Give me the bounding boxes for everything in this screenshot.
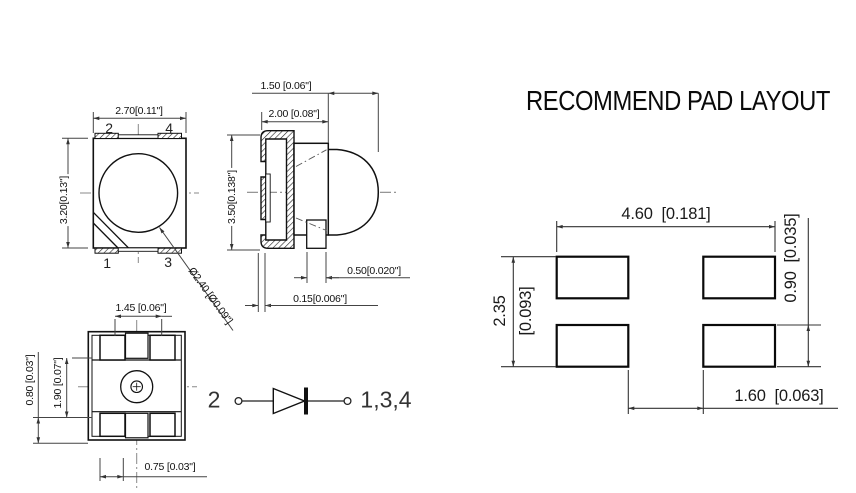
solder-pad [703, 257, 775, 299]
body-mid-dim: 1.90 [0.07"] [53, 358, 64, 409]
pad-1 [95, 248, 118, 253]
technical-drawing-canvas: RECOMMEND PAD LAYOUT 2.70[0.11"] 3.20[0.… [0, 0, 856, 493]
bottom-view-body [88, 332, 185, 440]
diode-symbol-icon [235, 388, 351, 415]
pad-width-dim: 4.60 [0.181] [621, 205, 710, 222]
pad-height-mm-dim: 2.35 [492, 295, 509, 326]
solder-pad [557, 257, 629, 299]
pin-label-1: 1 [103, 256, 111, 270]
diode-cathode-bar [304, 388, 308, 415]
anode-pin-label: 2 [208, 389, 221, 412]
pin-label-4: 4 [165, 121, 173, 135]
lead-step [307, 220, 326, 248]
pad-row-dim: 0.80 [0.03"] [25, 355, 36, 406]
led-package-outline [93, 138, 186, 248]
bottom-pad [100, 335, 125, 360]
side-height-dim: 3.50[0.138"] [227, 168, 238, 226]
pin-label-3: 3 [164, 255, 172, 269]
cathode-pins-label: 1,3,4 [360, 389, 411, 412]
pad-gap-dim: 1.60 [0.063] [734, 388, 823, 405]
tab-offset-dim: 0.75 [0.03"] [145, 462, 196, 473]
side-view [227, 93, 410, 312]
dome-lens-profile [328, 150, 378, 236]
page-title: RECOMMEND PAD LAYOUT [526, 85, 830, 117]
diode-anode-triangle [273, 389, 304, 414]
side-body-depth-dim: 2.00 [0.08"] [269, 109, 320, 120]
solder-pad [557, 325, 629, 367]
front-width-dim: 2.70[0.11"] [115, 106, 162, 117]
side-view-body [261, 131, 378, 249]
front-view-body [93, 133, 186, 253]
bottom-pad [100, 413, 125, 436]
pad-3 [158, 248, 182, 253]
side-lens-depth-dim: 1.50 [0.06"] [261, 81, 312, 92]
center-tab-top [126, 333, 149, 358]
front-height-dim: 3.20[0.13"] [59, 174, 70, 226]
tab-width-dim: 1.45 [0.06"] [116, 302, 167, 313]
lead-width-dim: 0.50[0.020"] [347, 265, 401, 276]
drawing-linework [0, 0, 856, 493]
center-tab-bottom [126, 413, 149, 438]
pad-layout-pads [557, 257, 775, 367]
bottom-pad [150, 413, 175, 436]
pin-label-2: 2 [105, 121, 113, 135]
solder-pad [703, 325, 775, 367]
pad-pad-height-dim: 0.90 [0.035] [783, 213, 800, 302]
lead-standoff-dim: 0.15[0.006"] [293, 293, 347, 304]
bottom-pad [150, 335, 175, 360]
pad-height-in-dim: [0.093] [518, 286, 535, 335]
